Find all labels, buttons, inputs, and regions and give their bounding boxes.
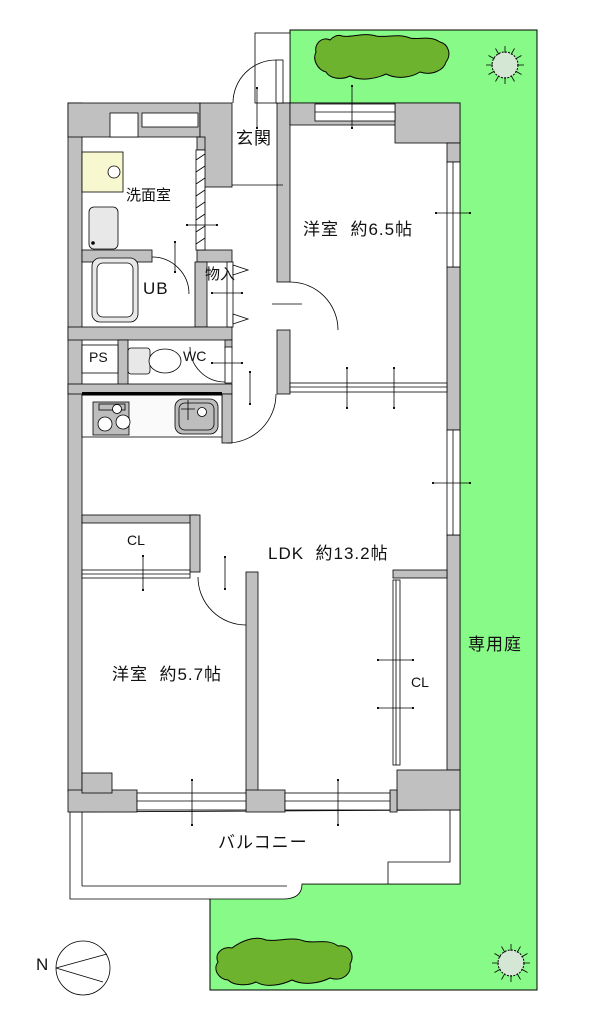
porch-wall bbox=[255, 33, 290, 103]
room-label-ldk: LDK 約13.2帖 bbox=[268, 545, 389, 563]
room-label-ps: PS bbox=[89, 350, 108, 365]
room-label-bedroom65: 洋室 約6.5帖 bbox=[303, 221, 413, 239]
room-label-ub: UB bbox=[143, 280, 169, 298]
room-label-balcony: バルコニー bbox=[218, 834, 308, 852]
toilet bbox=[128, 348, 181, 374]
room-label-genkan: 玄関 bbox=[236, 130, 272, 148]
room-label-closet1: CL bbox=[127, 533, 145, 548]
washroom-folding-door bbox=[196, 150, 205, 250]
shrub-icon bbox=[216, 938, 352, 985]
shrub-icon bbox=[315, 35, 449, 79]
bedroom65-door bbox=[272, 282, 338, 330]
room-label-closet2: CL bbox=[411, 675, 429, 690]
room-label-garden: 専用庭 bbox=[468, 636, 522, 654]
vanity bbox=[82, 152, 123, 192]
room-label-wc: WC bbox=[183, 349, 206, 364]
room-label-bedroom57: 洋室 約5.7帖 bbox=[112, 666, 222, 684]
dimension-ticks bbox=[143, 86, 470, 825]
floor-plan: 玄関 洗面室 UB 物入 PS WC 洋室 約6.5帖 LDK 約13.2帖 C… bbox=[0, 0, 602, 1024]
walls bbox=[68, 103, 460, 812]
windows bbox=[82, 104, 460, 810]
floor-plan-drawing bbox=[0, 0, 602, 1024]
hall-ldk-door bbox=[227, 394, 276, 443]
bathtub bbox=[92, 258, 138, 322]
bedroom57-door bbox=[198, 577, 246, 625]
compass-icon bbox=[56, 941, 110, 995]
washer-pan bbox=[89, 207, 118, 249]
room-label-monoire: 物入 bbox=[205, 266, 223, 283]
room-label-senmen: 洗面室 bbox=[126, 188, 171, 204]
compass-north-label: N bbox=[36, 956, 49, 974]
kitchen-sink bbox=[175, 399, 218, 434]
stove bbox=[93, 402, 130, 435]
